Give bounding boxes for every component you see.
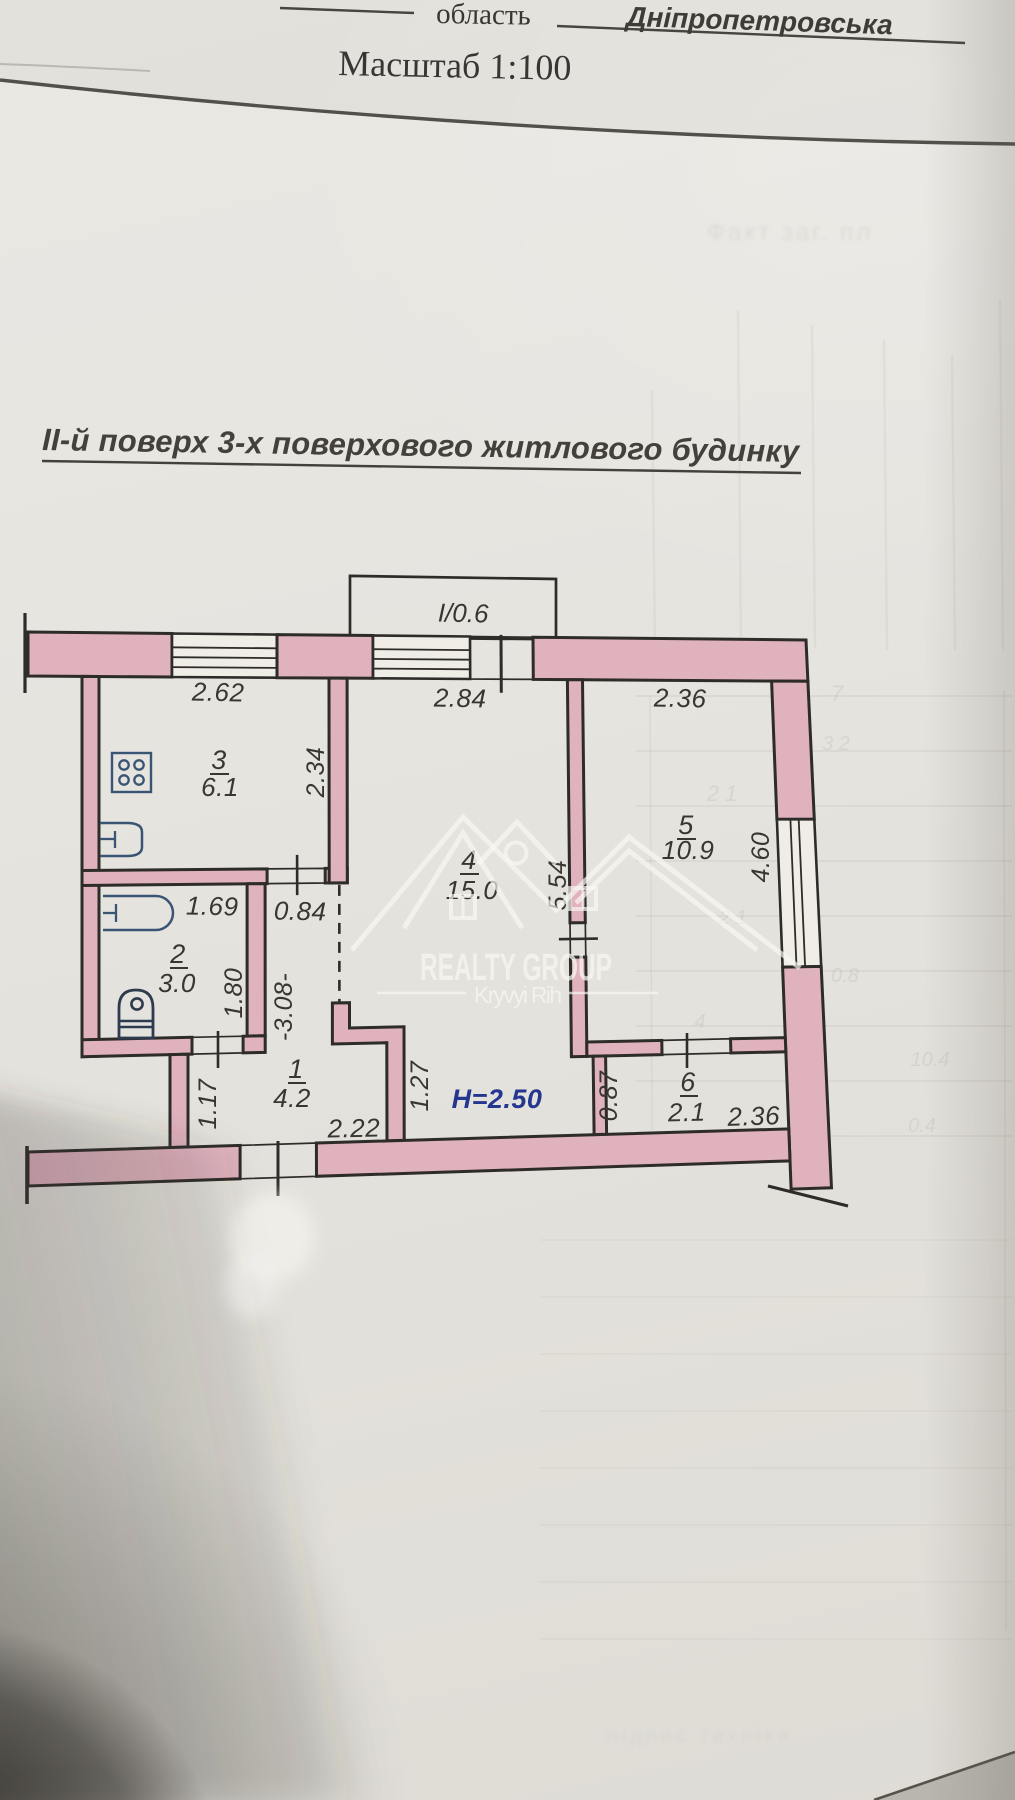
svg-text:2.84: 2.84 xyxy=(433,683,487,714)
svg-text:2.62: 2.62 xyxy=(191,677,245,708)
svg-text:2.34: 2.34 xyxy=(302,747,330,799)
svg-text:4.60: 4.60 xyxy=(747,832,775,883)
svg-text:2 1: 2 1 xyxy=(706,781,738,806)
svg-text:0.87: 0.87 xyxy=(595,1070,623,1121)
svg-text:-3.08-: -3.08- xyxy=(270,973,298,1041)
svg-text:10.9: 10.9 xyxy=(662,835,715,865)
svg-text:4.2: 4.2 xyxy=(273,1083,311,1113)
svg-text:6: 6 xyxy=(680,1067,696,1097)
svg-text:1.17: 1.17 xyxy=(194,1078,222,1129)
svg-text:2.36: 2.36 xyxy=(653,683,707,714)
svg-text:0.8: 0.8 xyxy=(831,965,859,987)
svg-text:2.36: 2.36 xyxy=(726,1100,781,1132)
svg-text:H=2.50: H=2.50 xyxy=(452,1084,543,1114)
svg-text:3.0: 3.0 xyxy=(158,968,196,998)
svg-text:І/0.6: І/0.6 xyxy=(438,598,490,629)
svg-text:6.1: 6.1 xyxy=(201,772,239,802)
svg-text:0.4: 0.4 xyxy=(908,1115,936,1137)
svg-text:3: 3 xyxy=(211,745,227,775)
svg-text:1.69: 1.69 xyxy=(186,891,239,922)
svg-text:2: 2 xyxy=(169,939,186,969)
svg-text:Факт заг. пл: Факт заг. пл xyxy=(707,219,874,246)
svg-text:7: 7 xyxy=(831,681,844,706)
svg-text:2.22: 2.22 xyxy=(326,1113,380,1144)
svg-text:Kryvyi Rih: Kryvyi Rih xyxy=(474,982,562,1008)
svg-text:1.80: 1.80 xyxy=(220,968,248,1019)
svg-text:підпис техніка: підпис техніка xyxy=(607,1725,793,1747)
svg-text:10.4: 10.4 xyxy=(911,1049,950,1071)
svg-text:1.27: 1.27 xyxy=(406,1060,434,1111)
svg-text:0.84: 0.84 xyxy=(274,896,327,927)
svg-text:2.1: 2.1 xyxy=(667,1097,706,1128)
svg-text:1: 1 xyxy=(288,1054,304,1084)
svg-text:4: 4 xyxy=(694,1011,705,1033)
svg-text:3 2: 3 2 xyxy=(822,733,850,755)
